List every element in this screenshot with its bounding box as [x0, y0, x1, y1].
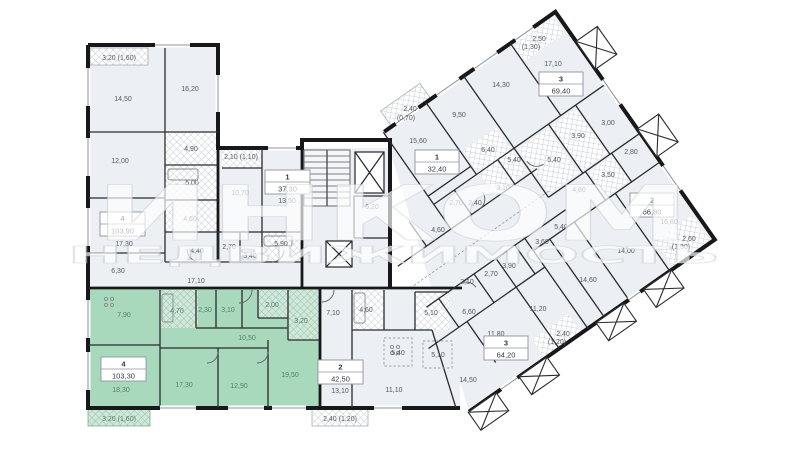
room-area-label: 5,40 — [507, 157, 521, 164]
room-area-label: 4,60 — [359, 307, 373, 314]
apartment-number: 3 — [504, 339, 508, 348]
apartment-number: 1 — [435, 153, 439, 162]
room-area-label: 16,20 — [181, 86, 199, 93]
room-area-label: 6,40 — [481, 147, 495, 154]
room-area-label: 14,30 — [492, 82, 510, 89]
balcony-label: 3,20 (1,60) — [102, 416, 136, 423]
balcony-label: (1,20) — [548, 339, 566, 346]
balcony-label: 3,20 (1,60) — [102, 55, 136, 62]
balcony-label: (1,30) — [522, 44, 540, 51]
room-area-label: 14,50 — [114, 96, 132, 103]
room-area-label: 12,00 — [111, 158, 129, 165]
apartment-area: 64,20 — [497, 351, 516, 360]
apartment-number: 3 — [559, 75, 563, 84]
room-area-label: 14,60 — [579, 277, 597, 284]
balcony-label: 2,40 — [403, 106, 417, 113]
room-area-label: 3,20 — [294, 318, 308, 325]
apartment-tag[interactable]: 3 64,20 — [484, 336, 528, 360]
apartment-area: 103,30 — [112, 372, 135, 381]
room-area-label: 6,60 — [462, 309, 476, 316]
balcony-label: 2,40 (1,20) — [323, 416, 357, 423]
floor-plan: 3,20 (1,60) 14,50 16,20 12,00 4,90 5,00 … — [0, 0, 800, 450]
room-area-label: 2,70 — [484, 271, 498, 278]
room-area-label: 2,10 — [460, 279, 474, 286]
room-area-label: 14,50 — [459, 377, 477, 384]
room-area-label: 4,70 — [170, 308, 184, 315]
room-area-label: 5,10 — [431, 352, 445, 359]
room-area-label: 7,10 — [326, 310, 340, 317]
balcony-label: (0,70) — [397, 115, 415, 122]
room-area-label: 15,60 — [409, 138, 427, 145]
room-area-label: 3,10 — [221, 307, 235, 314]
room-area-label: 6,30 — [111, 268, 125, 275]
balcony-label: 2,50 — [532, 36, 546, 43]
apartment-number: 2 — [338, 363, 342, 372]
room-area-label: 17,10 — [544, 61, 562, 68]
room-area-label: 13,10 — [331, 388, 349, 395]
room-area-label: 19,50 — [281, 372, 299, 379]
room-area-label: 2,80 — [624, 149, 638, 156]
room-area-label: 2,30 — [198, 307, 212, 314]
room-area-label: 11,10 — [386, 387, 403, 394]
room-area-label: 4,90 — [184, 146, 198, 153]
balcony-label: 2,40 — [556, 331, 570, 338]
apartment-tag[interactable]: 4 103,30 — [101, 357, 146, 381]
room-area-label: 10,50 — [238, 335, 256, 342]
room-area-label: 3,00 — [601, 120, 615, 127]
watermark-line2: НЕДВИЖИМОСТЬ — [68, 243, 720, 269]
watermark: ИНКОМ НЕДВИЖИМОСТЬ — [68, 169, 720, 269]
apartment-tag[interactable]: 2 42,50 — [318, 360, 363, 384]
floor-plan-page: 3,20 (1,60) 14,50 16,20 12,00 4,90 5,00 … — [0, 0, 800, 450]
room-area-label: 18,30 — [112, 387, 130, 394]
room-area-label: 2,00 — [265, 302, 279, 309]
room-area-label: 17,10 — [187, 278, 205, 285]
room-area-label: 7,90 — [117, 312, 131, 319]
room-area-label: 5,40 — [391, 350, 405, 357]
apartment-area: 69,40 — [552, 87, 571, 96]
apartment-tag[interactable]: 3 69,40 — [539, 72, 583, 96]
room-area-label: 9,50 — [452, 112, 466, 119]
balcony-label: 2,10 (1,10) — [224, 154, 258, 161]
room-area-label: 17,30 — [175, 382, 193, 389]
room-area-label: 5,10 — [424, 310, 438, 317]
room-area-label: 11,20 — [530, 306, 547, 313]
room-area-label: 5,40 — [547, 157, 561, 164]
apartment-area: 42,50 — [331, 375, 350, 384]
room-area-label: 3,90 — [571, 133, 585, 140]
room-area-label: 12,90 — [230, 383, 248, 390]
